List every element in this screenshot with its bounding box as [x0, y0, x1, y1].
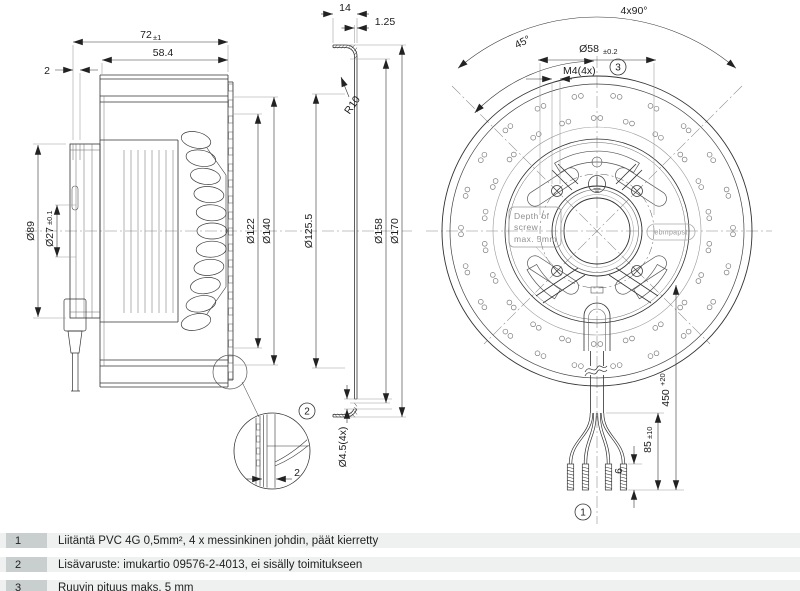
technical-drawing-page: 2 2: [0, 0, 800, 591]
note-number: 2: [6, 557, 47, 572]
note-number: 3: [6, 580, 47, 591]
note-number: 1: [6, 533, 47, 548]
note-text: Ruuvin pituus maks. 5 mm: [58, 582, 194, 591]
notes-table: 1 Liitäntä PVC 4G 0,5mm², 4 x messinkine…: [0, 0, 800, 591]
note-row-1: 1 Liitäntä PVC 4G 0,5mm², 4 x messinkine…: [0, 533, 800, 548]
note-row-3: 3 Ruuvin pituus maks. 5 mm: [0, 580, 800, 591]
note-row-2: 2 Lisävaruste: imukartio 09576-2-4013, e…: [0, 557, 800, 572]
note-text: Lisävaruste: imukartio 09576-2-4013, ei …: [58, 559, 362, 571]
note-text: Liitäntä PVC 4G 0,5mm², 4 x messinkinen …: [58, 535, 378, 547]
